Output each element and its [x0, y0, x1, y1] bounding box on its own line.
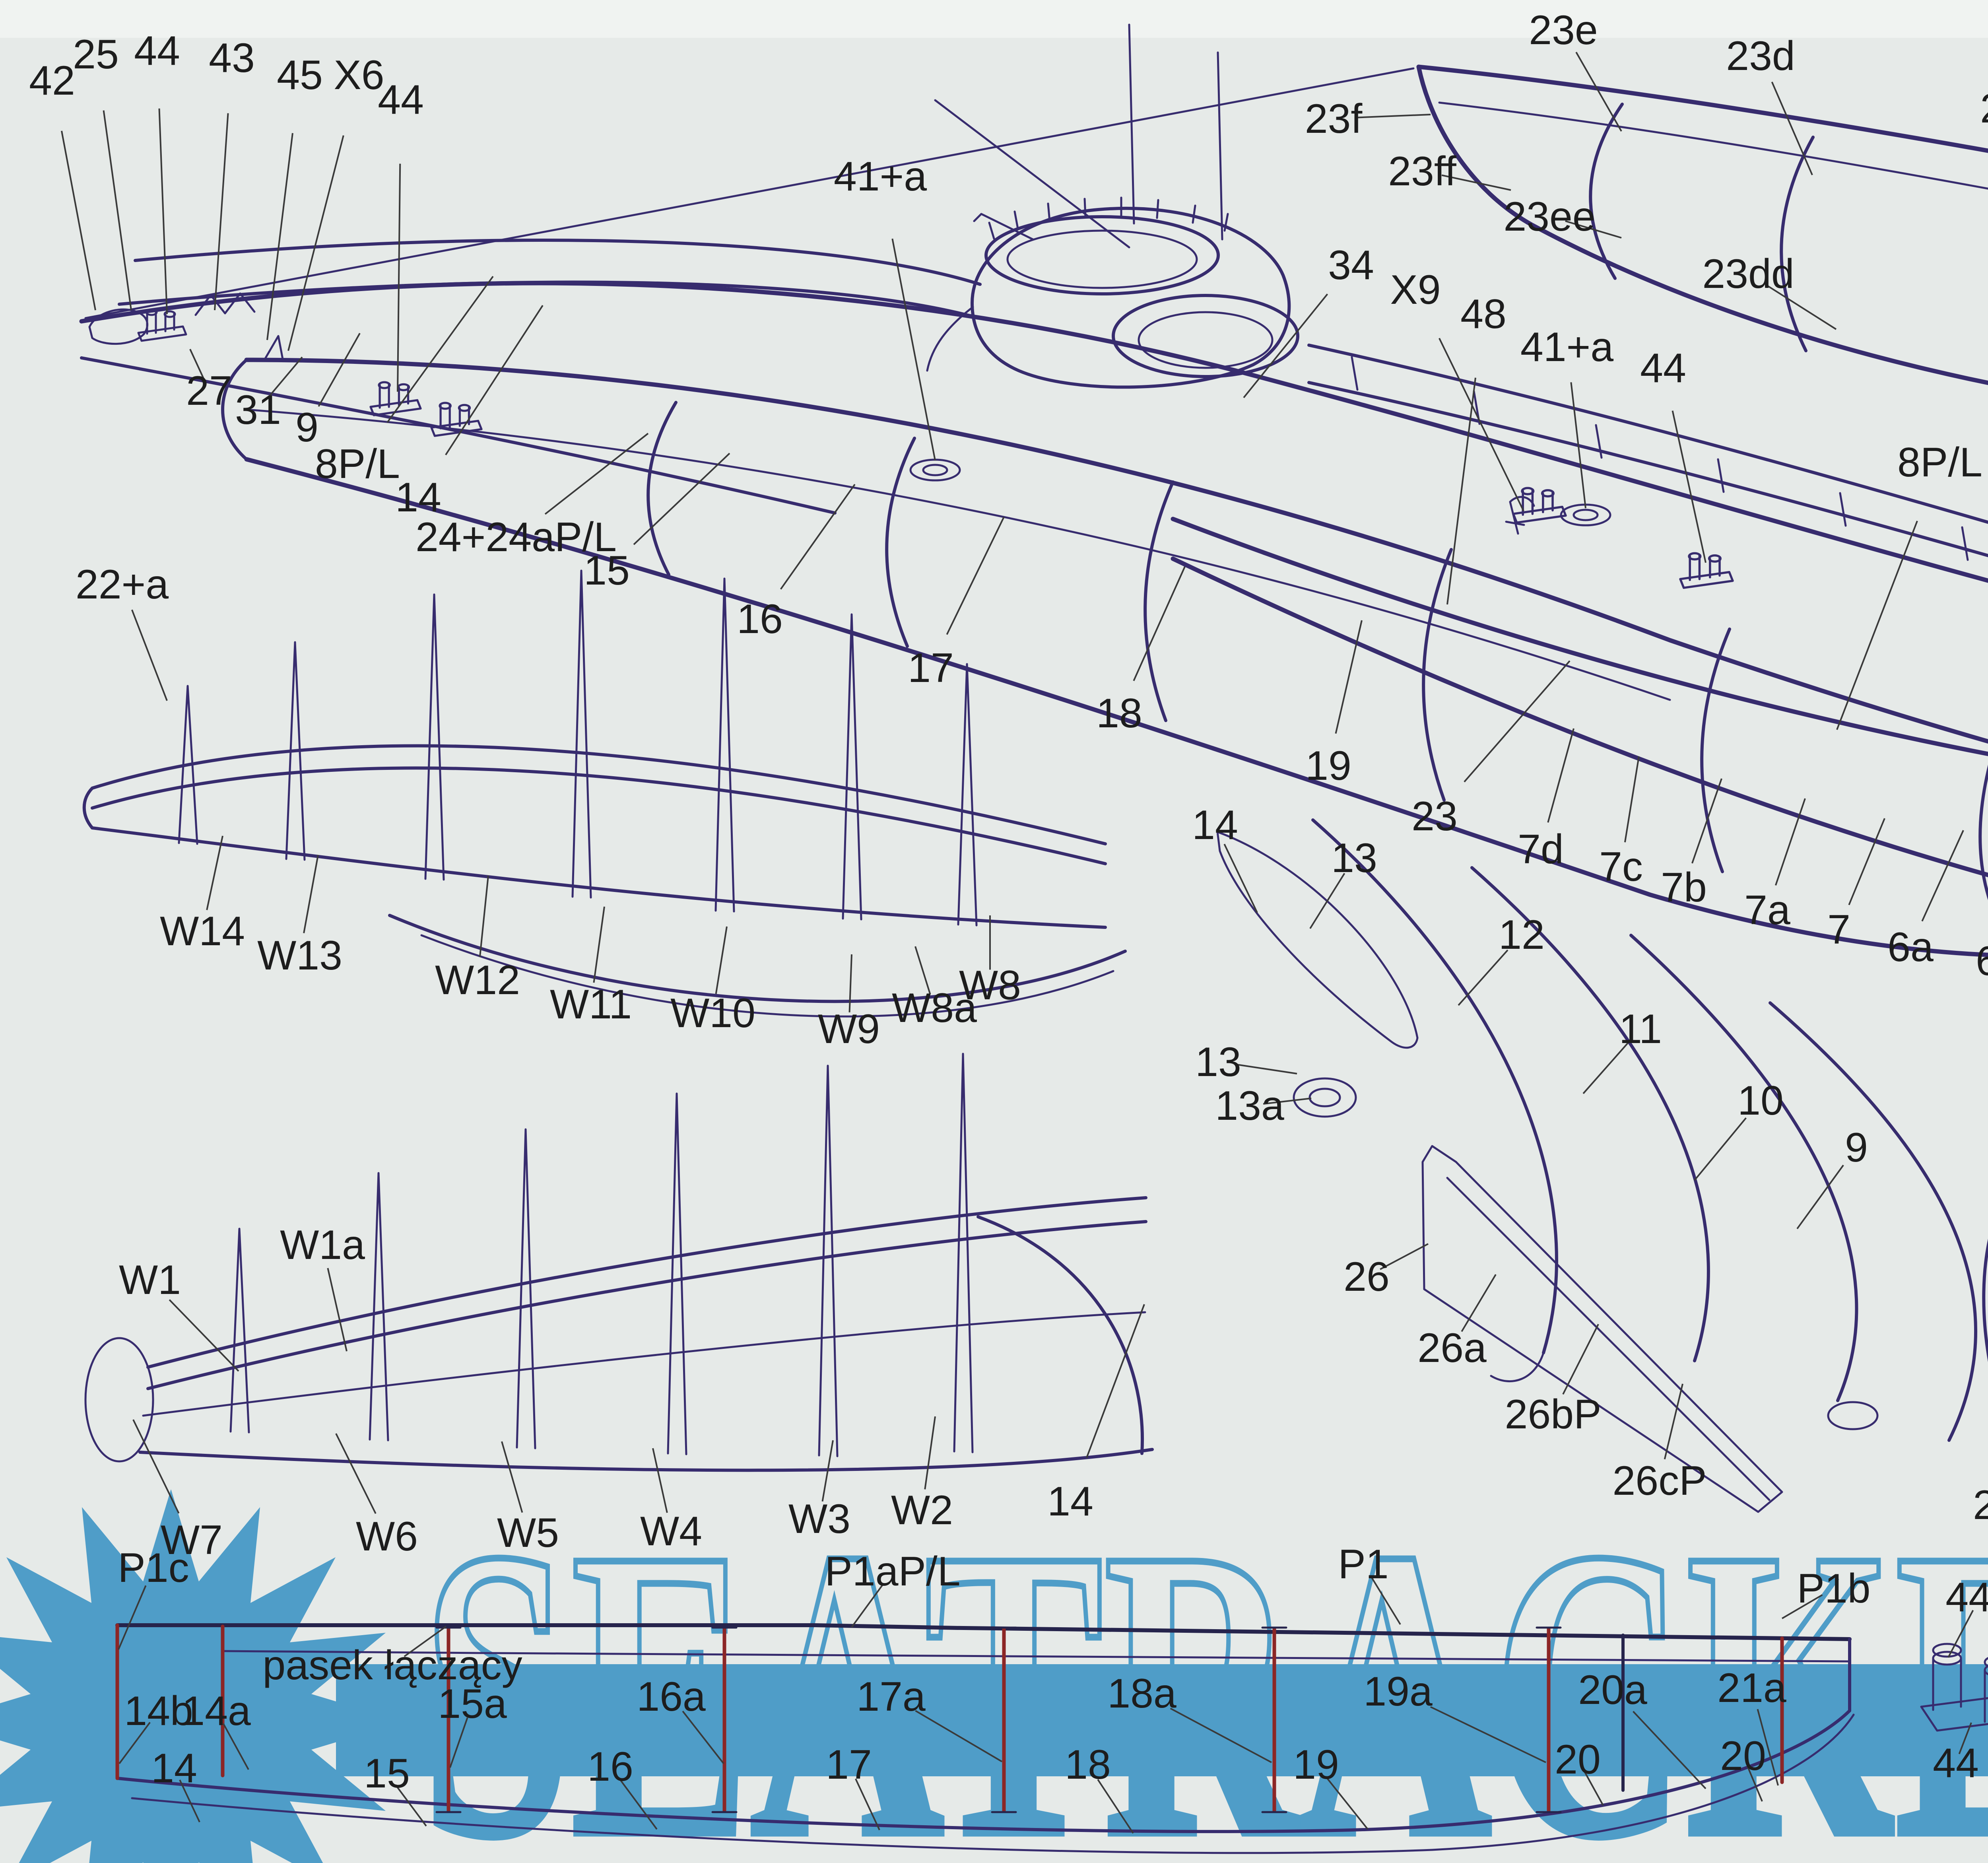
part-label: W12: [435, 957, 520, 1003]
part-label: P1b: [1797, 1566, 1870, 1612]
part-label: 19a: [1363, 1669, 1433, 1715]
part-label: 44: [1640, 345, 1686, 391]
part-label: P1c: [118, 1545, 189, 1591]
part-label: 14: [151, 1745, 197, 1791]
part-label: 18: [1065, 1742, 1111, 1788]
part-label: 7c: [1599, 844, 1643, 890]
part-label: W4: [640, 1508, 702, 1554]
part-label: 19: [1305, 743, 1351, 789]
part-label: 13a: [1215, 1083, 1284, 1129]
part-label: 22+a: [76, 561, 169, 608]
part-label: W1: [119, 1257, 181, 1303]
part-label: 26cP: [1612, 1458, 1706, 1504]
part-label: W11: [550, 981, 632, 1028]
part-label: 45: [277, 52, 323, 98]
part-label: 19: [1293, 1742, 1339, 1788]
part-label: 43: [209, 35, 255, 81]
part-label: 44: [1933, 1740, 1979, 1786]
part-label: 20: [1555, 1737, 1601, 1783]
page-top-edge: [0, 0, 1988, 38]
part-label: 34: [1328, 242, 1374, 288]
part-label: W10: [670, 990, 755, 1036]
part-label: 23ee: [1503, 194, 1595, 240]
part-label: X9: [1390, 267, 1441, 313]
part-label: 17: [826, 1742, 872, 1788]
part-label: 26: [1343, 1254, 1390, 1300]
part-label: 27: [186, 368, 232, 414]
part-label: 8P/L: [1897, 439, 1982, 486]
part-label: 44a: [1945, 1574, 1988, 1620]
part-label: 21: [1973, 1482, 1988, 1528]
part-label: 15: [364, 1750, 410, 1797]
part-label: 26bP: [1505, 1391, 1602, 1438]
part-label: 12: [1499, 912, 1545, 958]
part-label: 31: [235, 387, 281, 433]
part-label: 9: [1845, 1125, 1868, 1171]
part-label: 18: [1096, 690, 1142, 736]
part-label: 21a: [1717, 1665, 1786, 1711]
part-label: 48: [1460, 291, 1507, 337]
part-label: 14: [395, 474, 441, 521]
part-label: 15a: [438, 1681, 507, 1727]
part-label: 15: [584, 548, 630, 594]
part-label: 7b: [1661, 864, 1707, 911]
part-label: P1aP/L: [825, 1548, 960, 1595]
part-label: 14a: [182, 1688, 251, 1734]
part-label: W9: [818, 1006, 880, 1052]
part-label: 14: [1047, 1478, 1093, 1525]
part-label: 17a: [856, 1674, 926, 1720]
part-label: 44: [378, 77, 424, 123]
part-label: P1: [1338, 1541, 1388, 1587]
part-label: 41+a: [1520, 324, 1613, 370]
part-label: 23d: [1726, 33, 1795, 79]
part-label: W8: [959, 962, 1021, 1008]
part-label: 16a: [637, 1674, 706, 1720]
part-label: 23e: [1529, 7, 1598, 53]
part-label: X6: [334, 52, 384, 98]
part-label: 14: [1192, 802, 1238, 848]
diagram-canvas: SEATRACKER.RU SEATRACKER.RU: [0, 0, 1988, 1863]
part-label: 23dd: [1702, 251, 1794, 297]
part-label: 7d: [1518, 826, 1564, 872]
part-label: 6: [1976, 938, 1988, 984]
part-label: W14: [160, 908, 245, 954]
part-label: 17: [908, 645, 954, 691]
part-label: 8P/L: [315, 441, 400, 487]
part-label: W5: [497, 1510, 559, 1556]
part-label: 23c: [1980, 85, 1988, 132]
part-label: 7: [1827, 907, 1850, 953]
part-label: 20a: [1578, 1667, 1647, 1713]
part-label: 23ff: [1388, 148, 1457, 194]
part-label: W13: [257, 932, 342, 979]
part-label: 18a: [1107, 1671, 1176, 1717]
part-label: 13: [1195, 1039, 1241, 1085]
part-label: 41+a: [834, 153, 927, 200]
part-label: W1a: [280, 1222, 365, 1268]
part-label: W3: [788, 1496, 850, 1542]
part-label: 10: [1738, 1078, 1784, 1124]
part-label: 6a: [1887, 924, 1934, 970]
part-label: 25: [73, 31, 119, 78]
part-label: 11: [1619, 1006, 1662, 1052]
part-label: 26a: [1417, 1325, 1487, 1371]
part-label: 16: [737, 596, 783, 642]
part-label: 20: [1720, 1733, 1766, 1779]
part-label: 7a: [1744, 887, 1790, 933]
part-label: 42: [29, 58, 75, 104]
part-label: 23: [1411, 793, 1458, 839]
part-label: W6: [356, 1513, 418, 1560]
part-label: 44: [134, 28, 180, 74]
part-label: 23f: [1305, 96, 1363, 142]
part-label: W2: [891, 1487, 953, 1533]
part-label: 13: [1331, 835, 1377, 881]
part-label: 16: [587, 1744, 633, 1790]
